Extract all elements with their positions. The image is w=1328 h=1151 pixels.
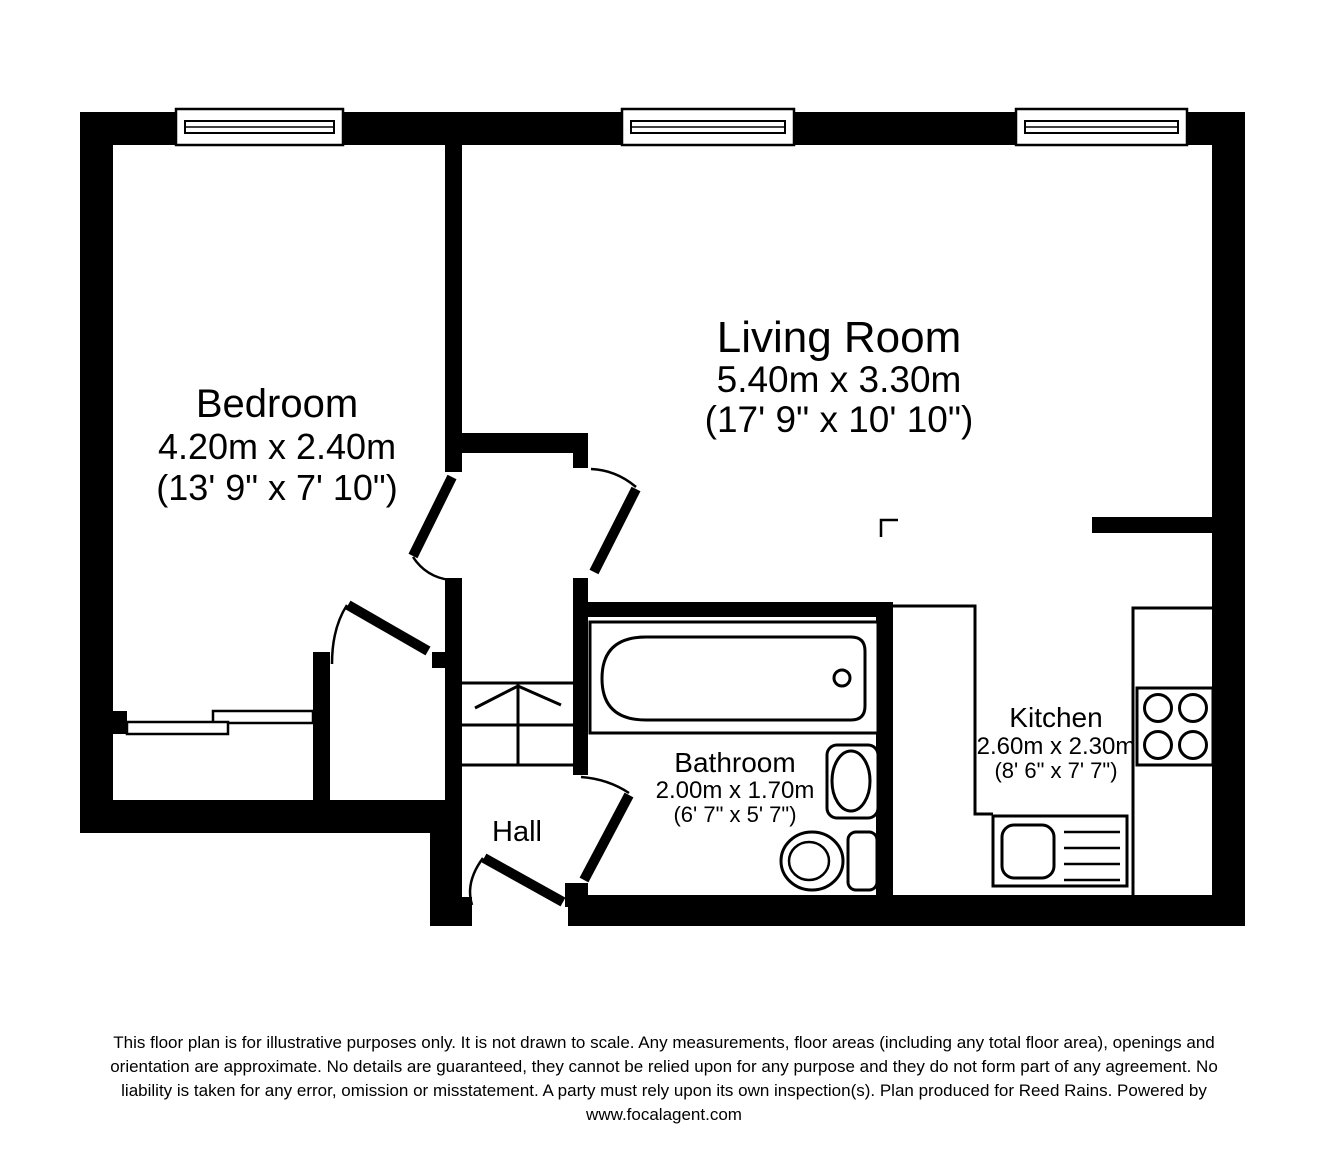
toilet-icon — [781, 832, 877, 890]
wall-bottom — [568, 895, 1245, 926]
wall-step-foot — [430, 897, 472, 926]
stove-icon — [1137, 688, 1213, 765]
living-room-door-icon — [591, 469, 636, 572]
living-room-corner-mark — [881, 520, 898, 537]
bedroom-dimensions: 4.20m x 2.40m — [158, 426, 396, 467]
bathroom-dimensions-imperial: (6' 7" x 5' 7") — [673, 802, 796, 827]
bathroom-door-icon — [581, 777, 629, 880]
wall-kitchen-living — [1092, 517, 1212, 533]
kitchen-dimensions-imperial: (8' 6" x 7' 7") — [994, 758, 1117, 783]
bedroom-door-icon — [413, 477, 452, 580]
disclaimer-line-3: liability is taken for any error, omissi… — [0, 1079, 1328, 1103]
living-room-window-icon — [622, 109, 794, 145]
wall-bathroom-top — [585, 602, 893, 617]
closet-door-icon — [332, 605, 428, 664]
wall-closet-left — [313, 652, 330, 800]
floor-plan-drawing: Bedroom 4.20m x 2.40m (13' 9" x 7' 10") … — [0, 0, 1328, 1151]
bathroom-sink-icon — [827, 745, 878, 818]
living-room-dimensions: 5.40m x 3.30m — [717, 359, 962, 400]
wall-left — [80, 112, 113, 833]
wall-wardrobe-stub — [113, 711, 127, 734]
windows — [176, 109, 1187, 145]
living-room-dimensions-imperial: (17' 9" x 10' 10") — [705, 399, 974, 440]
bathtub-icon — [590, 622, 878, 733]
bedroom-dimensions-imperial: (13' 9" x 7' 10") — [156, 467, 397, 508]
wall-right — [1212, 112, 1245, 926]
disclaimer-line-1: This floor plan is for illustrative purp… — [0, 1031, 1328, 1055]
kitchen-counter-left-edge — [891, 606, 993, 814]
bedroom-label: Bedroom — [196, 382, 358, 426]
wall-bedroom-bottom — [80, 800, 462, 833]
wall-bedroom-living — [445, 145, 462, 472]
wall-entrance-jamb — [565, 883, 588, 907]
entrance-door-icon — [470, 858, 563, 905]
bedroom-window-icon — [176, 109, 343, 145]
wall-hall-left — [445, 578, 462, 832]
kitchen-dimensions: 2.60m x 2.30m — [977, 733, 1136, 760]
living-room-label: Living Room — [717, 313, 962, 362]
disclaimer: This floor plan is for illustrative purp… — [0, 1031, 1328, 1127]
wall-living-door-jamb — [573, 433, 588, 468]
wall-hall-top — [462, 433, 588, 453]
bathroom-label: Bathroom — [674, 747, 795, 778]
wardrobe-sliding-doors-icon — [127, 711, 313, 734]
hall-cupboard-icon — [462, 683, 573, 765]
disclaimer-website: www.focalagent.com — [0, 1103, 1328, 1127]
disclaimer-line-2: orientation are approximate. No details … — [0, 1055, 1328, 1079]
wall-closet-jamb — [432, 652, 445, 668]
hall-label: Hall — [492, 816, 542, 848]
bathtub-drain-icon — [834, 670, 850, 686]
floor-plan-page: Bedroom 4.20m x 2.40m (13' 9" x 7' 10") … — [0, 0, 1328, 1151]
kitchen-label: Kitchen — [1009, 702, 1102, 733]
bathroom-dimensions: 2.00m x 1.70m — [656, 777, 815, 804]
kitchen-sink-icon — [993, 816, 1127, 886]
kitchen-window-icon — [1016, 109, 1187, 145]
